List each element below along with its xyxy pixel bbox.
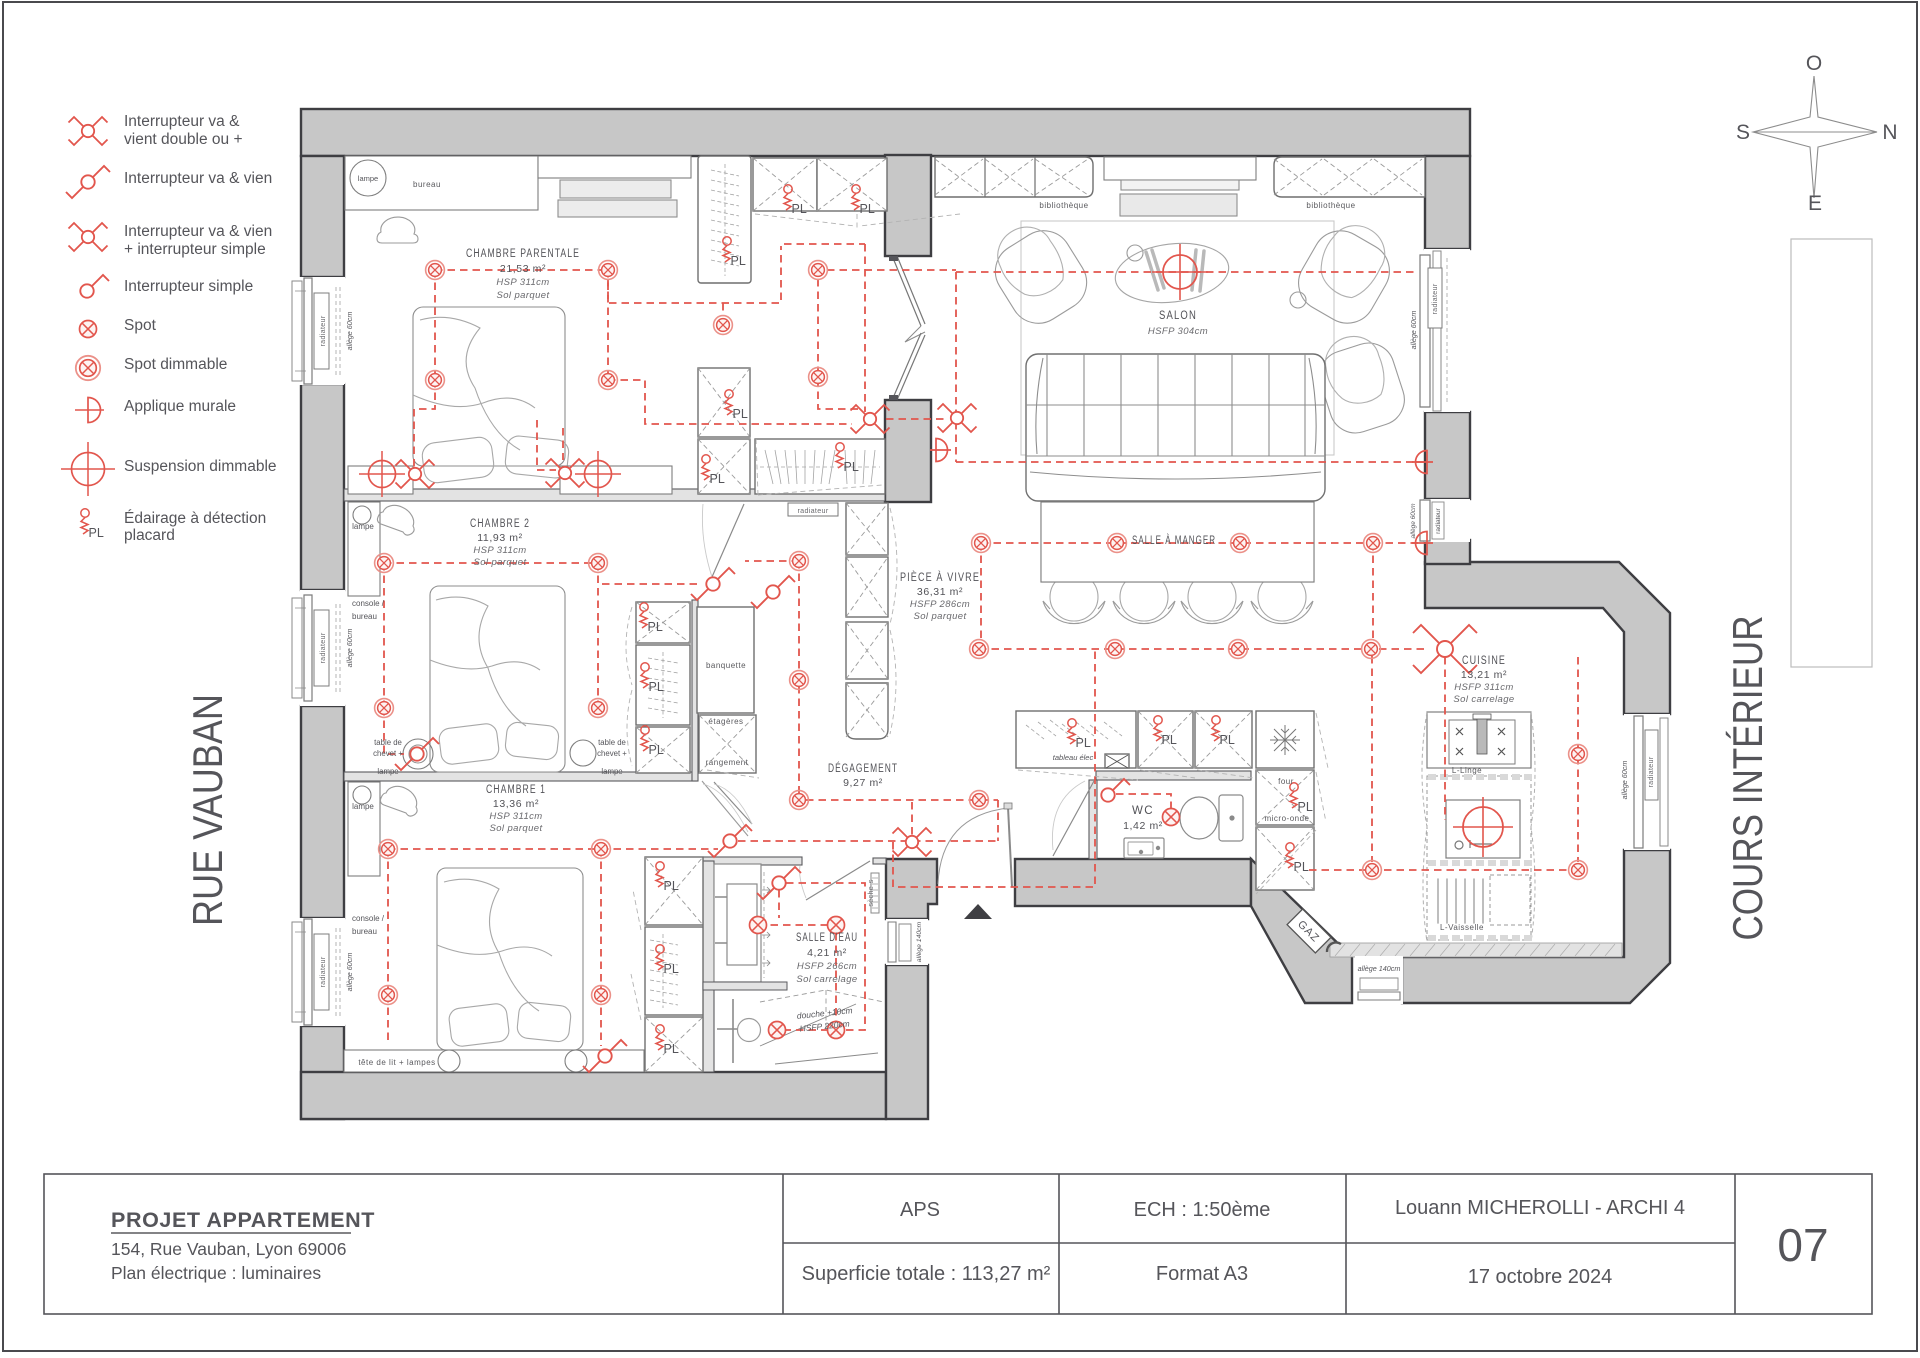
svg-text:sèche-s: sèche-s [866, 879, 875, 906]
svg-text:Sol parquet: Sol parquet [490, 823, 543, 834]
svg-text:HSFP 304cm: HSFP 304cm [1148, 326, 1208, 337]
svg-text:Sol parquet: Sol parquet [914, 611, 967, 622]
svg-text:Interrupteur va & vien: Interrupteur va & vien [124, 170, 272, 187]
svg-text:Interrupteur va &: Interrupteur va & [124, 113, 240, 130]
svg-text:N: N [1882, 121, 1897, 144]
svg-text:L-Vaisselle: L-Vaisselle [1440, 923, 1484, 932]
svg-text:radiateur: radiateur [797, 506, 828, 515]
svg-text:CHAMBRE 2: CHAMBRE 2 [470, 518, 530, 530]
svg-text:four: four [1278, 777, 1294, 786]
svg-text:Sol carrelage: Sol carrelage [1453, 694, 1514, 705]
svg-text:bureau: bureau [413, 180, 441, 189]
svg-text:RUE VAUBAN: RUE VAUBAN [184, 694, 231, 926]
svg-text:allège 60cm: allège 60cm [1620, 761, 1629, 800]
svg-text:allège 140cm: allège 140cm [916, 921, 923, 962]
svg-text:console /: console / [352, 914, 385, 923]
svg-text:WC: WC [1132, 805, 1154, 817]
svg-text:11,93 m²: 11,93 m² [477, 532, 522, 544]
svg-text:tête de lit + lampes: tête de lit + lampes [358, 1058, 435, 1067]
svg-text:DÉGAGEMENT: DÉGAGEMENT [828, 762, 898, 775]
svg-text:36,31 m²: 36,31 m² [917, 586, 963, 598]
svg-text:CUISINE: CUISINE [1462, 655, 1506, 667]
svg-text:bibliothèque: bibliothèque [1039, 201, 1088, 210]
svg-text:Louann MICHEROLLI - ARCHI 4: Louann MICHEROLLI - ARCHI 4 [1395, 1197, 1685, 1219]
svg-text:PROJET APPARTEMENT: PROJET APPARTEMENT [111, 1208, 375, 1232]
svg-text:Sol parquet: Sol parquet [474, 557, 527, 568]
svg-text:+ interrupteur simple: + interrupteur simple [124, 241, 266, 258]
svg-text:Édairage à détection: Édairage à détection [124, 510, 266, 527]
svg-text:radiateur: radiateur [1430, 283, 1439, 314]
svg-text:bureau: bureau [352, 612, 377, 621]
svg-text:Sol parquet: Sol parquet [497, 290, 550, 301]
svg-text:radiateur: radiateur [1435, 507, 1442, 533]
svg-text:PIÈCE À VIVRE: PIÈCE À VIVRE [900, 571, 980, 584]
svg-text:CHAMBRE PARENTALE: CHAMBRE PARENTALE [466, 248, 580, 260]
svg-text:SALLE À MANGER: SALLE À MANGER [1132, 534, 1216, 547]
svg-text:Spot dimmable: Spot dimmable [124, 356, 227, 373]
svg-text:bibliothèque: bibliothèque [1306, 201, 1355, 210]
svg-text:07: 07 [1777, 1219, 1828, 1271]
svg-text:HSFP 286cm: HSFP 286cm [910, 599, 970, 610]
svg-text:Superficie totale : 113,27 m²: Superficie totale : 113,27 m² [802, 1263, 1051, 1285]
svg-text:HSP 311cm: HSP 311cm [496, 277, 549, 288]
svg-text:ECH : 1:50ème: ECH : 1:50ème [1134, 1199, 1271, 1221]
svg-text:Interrupteur va & vien: Interrupteur va & vien [124, 223, 272, 240]
svg-text:13,36 m²: 13,36 m² [493, 798, 539, 810]
svg-text:table de: table de [598, 738, 626, 747]
svg-text:chevet +: chevet + [597, 749, 627, 758]
svg-text:O: O [1806, 52, 1822, 75]
svg-text:HSP 311cm: HSP 311cm [473, 545, 526, 556]
svg-text:4,21 m²: 4,21 m² [807, 947, 847, 959]
svg-text:allège 60cm: allège 60cm [1410, 503, 1417, 539]
svg-text:9,27 m²: 9,27 m² [843, 777, 883, 789]
svg-text:154, Rue Vauban, Lyon 69006: 154, Rue Vauban, Lyon 69006 [111, 1239, 346, 1259]
svg-text:Sol carrelage: Sol carrelage [796, 974, 857, 985]
svg-text:17 octobre 2024: 17 octobre 2024 [1468, 1266, 1613, 1288]
svg-text:COURS INTÉRIEUR: COURS INTÉRIEUR [1724, 616, 1771, 941]
svg-text:E: E [1808, 192, 1822, 215]
svg-text:SALLE D'EAU: SALLE D'EAU [796, 932, 858, 944]
svg-text:Plan électrique : luminaires: Plan électrique : luminaires [111, 1263, 321, 1283]
svg-text:allège 60cm: allège 60cm [1409, 311, 1418, 350]
svg-text:allège 140cm: allège 140cm [1358, 964, 1401, 973]
svg-text:Format A3: Format A3 [1156, 1263, 1248, 1285]
svg-text:21,53 m²: 21,53 m² [500, 263, 546, 275]
svg-text:Interrupteur simple: Interrupteur simple [124, 278, 253, 295]
svg-text:Suspension dimmable: Suspension dimmable [124, 458, 277, 475]
svg-text:APS: APS [900, 1199, 940, 1221]
svg-text:chevet +: chevet + [373, 749, 403, 758]
svg-text:lampe: lampe [352, 522, 374, 531]
svg-text:banquette: banquette [706, 661, 746, 670]
svg-text:HSFP 266cm: HSFP 266cm [797, 961, 857, 972]
svg-text:vient double ou +: vient double ou + [124, 131, 243, 148]
svg-text:micro-onde: micro-onde [1264, 814, 1309, 823]
svg-text:placard: placard [124, 527, 175, 544]
svg-text:CHAMBRE 1: CHAMBRE 1 [486, 784, 546, 796]
svg-text:lampe: lampe [352, 802, 374, 811]
svg-text:table de: table de [374, 738, 402, 747]
svg-text:lampe: lampe [601, 767, 622, 776]
svg-text:lampe: lampe [377, 767, 398, 776]
svg-text:radiateur: radiateur [1646, 756, 1655, 787]
svg-text:13,21 m²: 13,21 m² [1461, 669, 1507, 681]
svg-text:lampe: lampe [358, 174, 378, 183]
svg-text:Applique murale: Applique murale [124, 398, 236, 415]
svg-text:S: S [1736, 121, 1750, 144]
svg-text:L-Linge: L-Linge [1452, 766, 1482, 775]
svg-text:étagères: étagères [708, 717, 743, 726]
svg-text:1,42 m²: 1,42 m² [1123, 820, 1163, 832]
svg-text:SALON: SALON [1159, 310, 1197, 322]
svg-text:rangement: rangement [706, 758, 749, 767]
svg-text:tableau élec: tableau élec [1053, 753, 1094, 762]
svg-text:bureau: bureau [352, 927, 377, 936]
svg-text:console /: console / [352, 599, 385, 608]
svg-text:HSFP 311cm: HSFP 311cm [1454, 682, 1513, 693]
svg-text:HSP 311cm: HSP 311cm [489, 811, 542, 822]
svg-text:Spot: Spot [124, 317, 157, 334]
